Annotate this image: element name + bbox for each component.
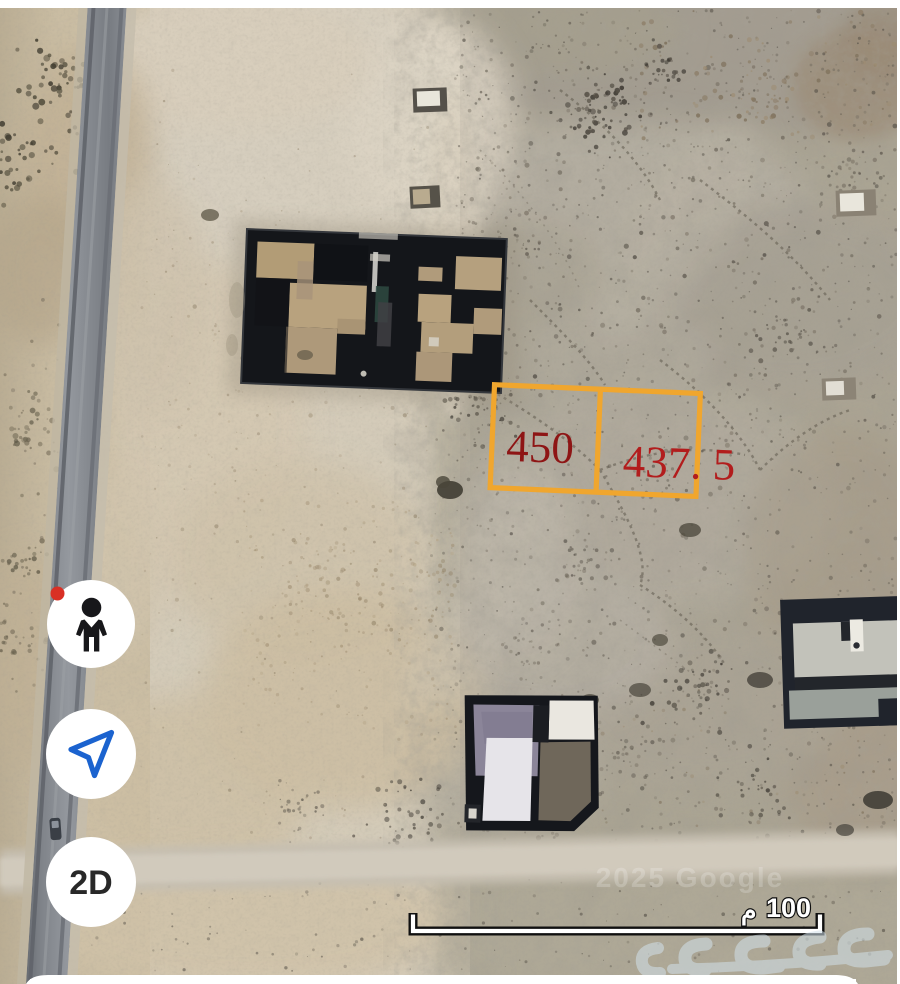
svg-text:م: م (741, 897, 756, 926)
svg-text:2D: 2D (69, 864, 112, 902)
svg-text:437. 5: 437. 5 (622, 436, 736, 490)
svg-text:100: 100 (766, 893, 811, 923)
svg-text:2025 Google: 2025 Google (596, 862, 785, 893)
svg-text:450: 450 (506, 421, 575, 473)
